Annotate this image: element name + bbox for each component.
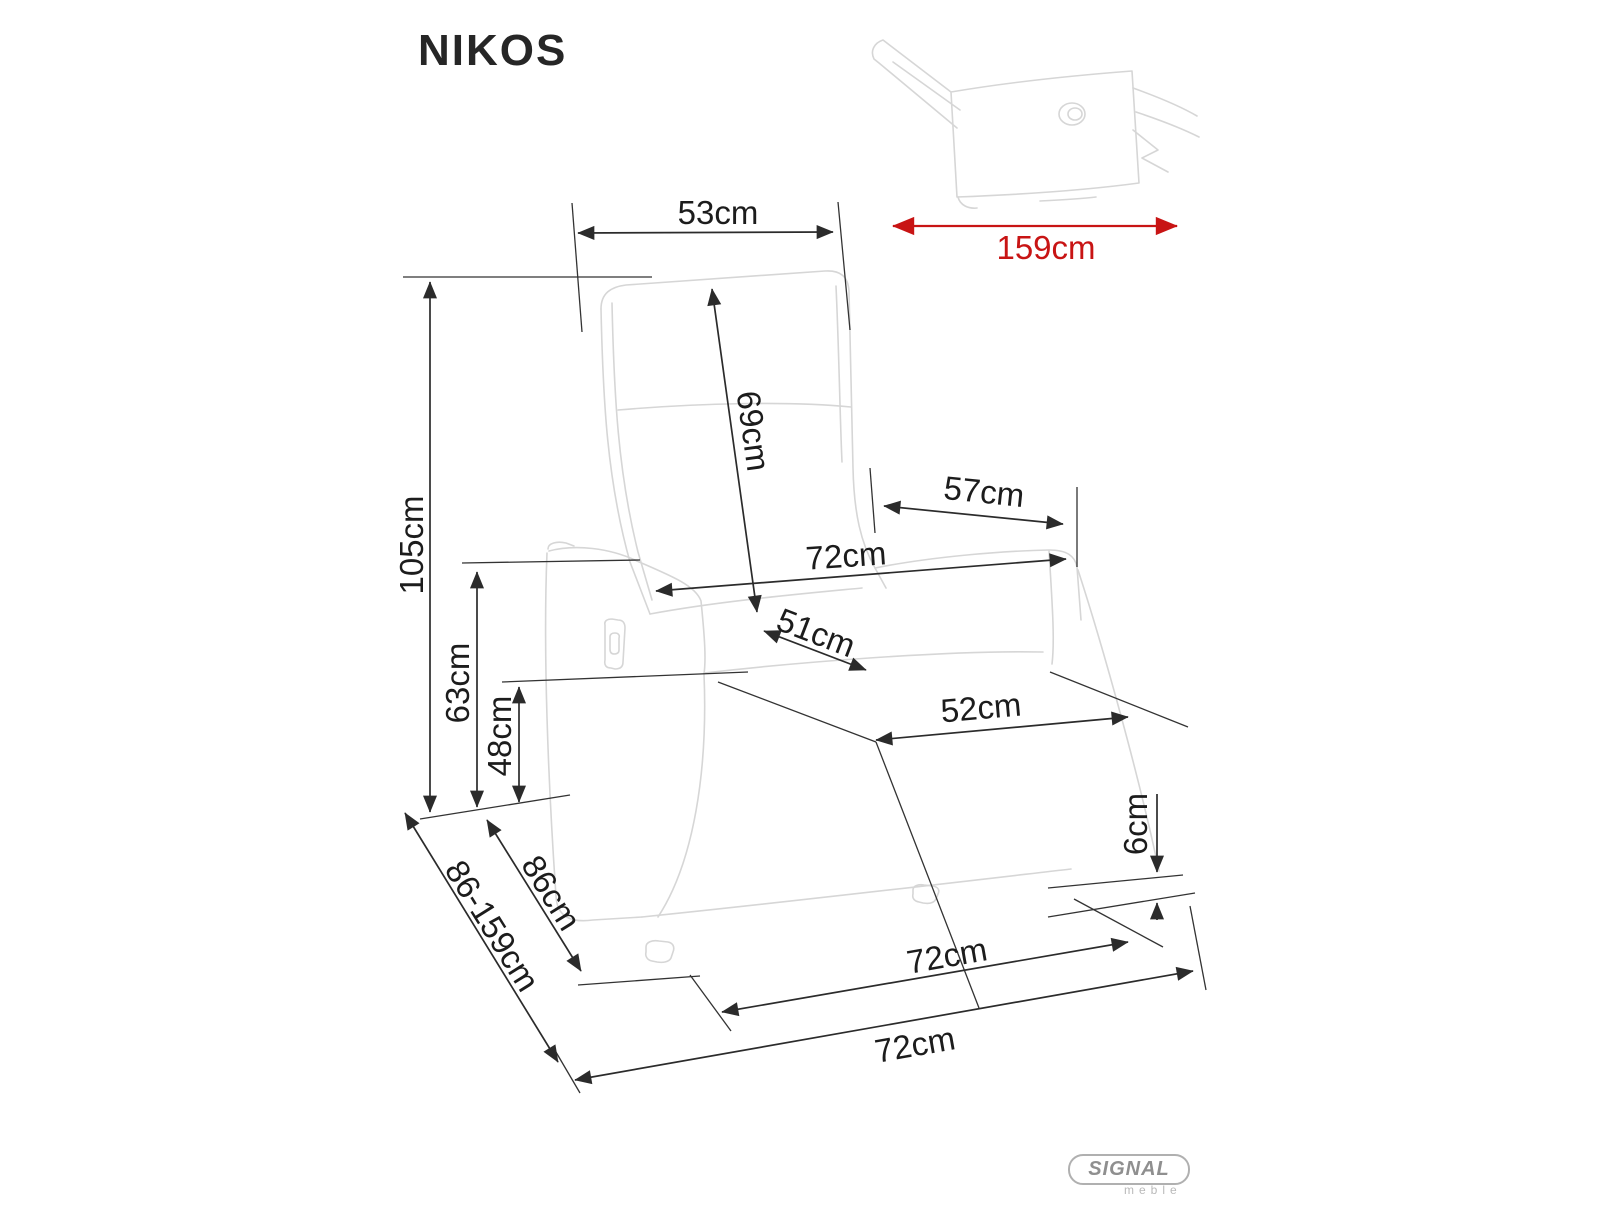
- logo-brand: SIGNAL: [1088, 1158, 1170, 1181]
- page-title: NIKOS: [418, 26, 567, 76]
- recliner-sketch: [546, 271, 1159, 962]
- dim-label-overall-height: 105cm: [393, 495, 431, 594]
- dim-label-backrest-width: 53cm: [678, 194, 759, 232]
- dim-label-armrest-height: 63cm: [439, 643, 477, 724]
- dim-label-seat-height: 48cm: [481, 696, 519, 777]
- dim-label-overall-width: 72cm: [804, 534, 887, 578]
- inset-reclined-sketch: [872, 40, 1199, 208]
- dim-label-seat-width: 52cm: [939, 686, 1023, 731]
- dim-label-clearance: 6cm: [1117, 793, 1155, 855]
- dimension-diagram-page: NIKOS 53cm 69cm 57cm 72cm 51cm 52cm 105c…: [0, 0, 1600, 1224]
- dim-label-reclined-length: 159cm: [996, 229, 1095, 267]
- logo-subtitle: meble: [1124, 1183, 1182, 1197]
- dim-line-backrest-width: [578, 232, 833, 233]
- signal-logo: SIGNAL: [1068, 1154, 1190, 1185]
